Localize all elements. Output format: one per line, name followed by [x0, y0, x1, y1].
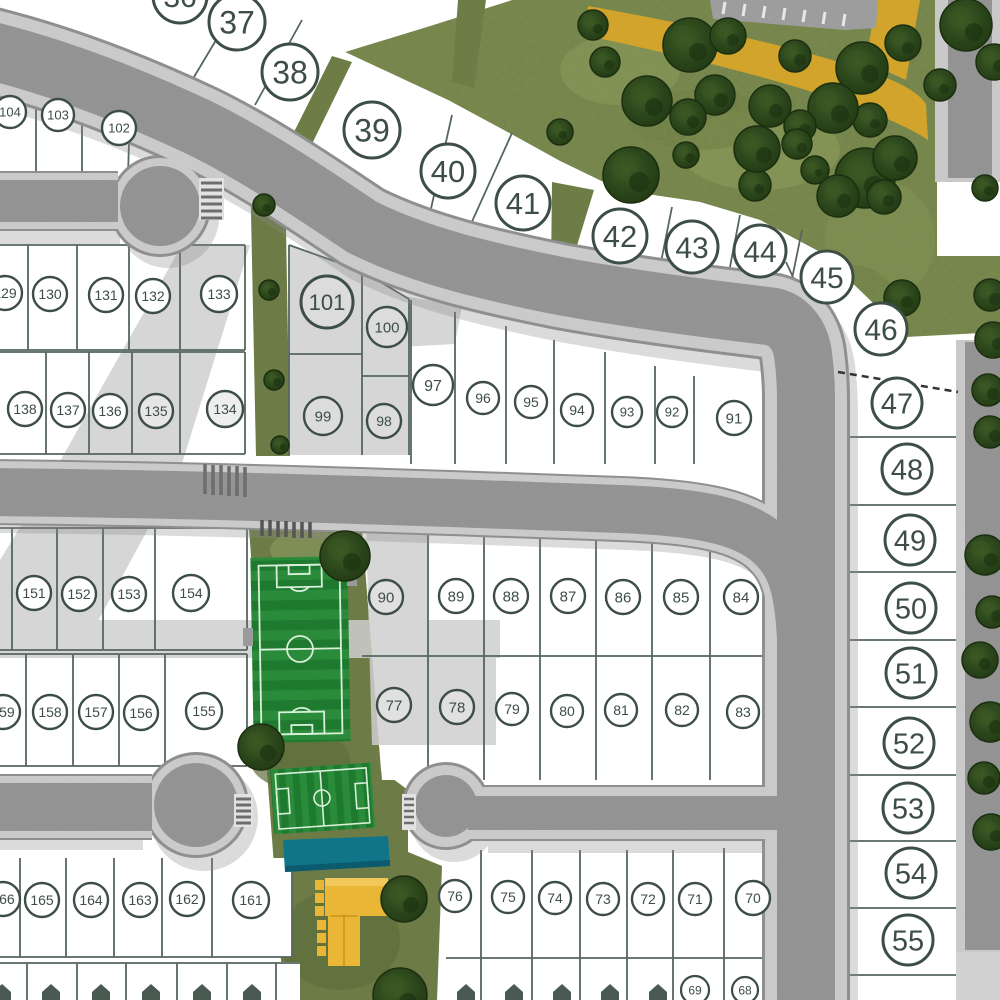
svg-text:137: 137	[56, 402, 80, 418]
svg-text:155: 155	[192, 703, 216, 719]
svg-text:159: 159	[0, 704, 15, 720]
svg-text:104: 104	[0, 105, 21, 120]
svg-text:163: 163	[128, 892, 152, 908]
svg-text:53: 53	[892, 793, 924, 825]
svg-text:41: 41	[506, 186, 540, 221]
svg-text:69: 69	[688, 983, 702, 997]
svg-text:96: 96	[475, 390, 491, 406]
svg-text:103: 103	[47, 108, 69, 123]
svg-text:91: 91	[726, 410, 743, 427]
svg-text:37: 37	[219, 5, 255, 41]
svg-text:54: 54	[895, 858, 927, 890]
svg-text:158: 158	[38, 704, 62, 720]
svg-text:79: 79	[504, 701, 520, 717]
svg-text:55: 55	[892, 925, 924, 957]
svg-text:100: 100	[374, 319, 399, 336]
svg-text:85: 85	[673, 589, 690, 606]
svg-text:133: 133	[207, 286, 231, 302]
svg-text:87: 87	[560, 588, 577, 605]
svg-text:46: 46	[864, 314, 897, 347]
svg-text:89: 89	[448, 588, 465, 605]
svg-text:131: 131	[94, 287, 118, 303]
svg-text:95: 95	[523, 394, 539, 410]
svg-text:74: 74	[547, 890, 563, 906]
svg-text:97: 97	[424, 378, 442, 395]
svg-text:157: 157	[84, 704, 108, 720]
svg-text:39: 39	[354, 113, 390, 149]
svg-text:132: 132	[141, 288, 165, 304]
svg-text:72: 72	[640, 891, 656, 907]
svg-text:80: 80	[559, 703, 575, 719]
svg-text:44: 44	[743, 236, 776, 269]
svg-text:71: 71	[687, 891, 703, 907]
svg-text:40: 40	[431, 154, 465, 189]
svg-text:152: 152	[67, 586, 91, 602]
svg-text:86: 86	[615, 589, 632, 606]
svg-text:81: 81	[613, 702, 629, 718]
svg-text:73: 73	[595, 891, 611, 907]
svg-text:88: 88	[503, 588, 520, 605]
svg-text:162: 162	[175, 891, 199, 907]
svg-text:42: 42	[603, 219, 637, 254]
svg-text:36: 36	[163, 0, 196, 14]
svg-text:52: 52	[893, 728, 925, 760]
svg-text:161: 161	[239, 892, 263, 908]
svg-text:38: 38	[272, 55, 308, 91]
svg-text:50: 50	[895, 593, 927, 625]
svg-text:164: 164	[79, 892, 103, 908]
svg-text:135: 135	[144, 403, 168, 419]
svg-text:101: 101	[309, 290, 346, 315]
svg-text:68: 68	[738, 983, 752, 997]
svg-text:153: 153	[117, 586, 141, 602]
svg-text:70: 70	[745, 890, 761, 906]
svg-text:92: 92	[665, 405, 679, 420]
svg-text:75: 75	[500, 889, 516, 905]
svg-text:130: 130	[38, 286, 62, 302]
svg-text:82: 82	[674, 702, 690, 718]
svg-text:138: 138	[13, 401, 37, 417]
svg-text:134: 134	[213, 401, 237, 417]
svg-text:77: 77	[386, 697, 403, 714]
svg-text:43: 43	[675, 232, 708, 265]
svg-text:94: 94	[569, 402, 585, 418]
svg-text:90: 90	[378, 589, 395, 606]
svg-text:84: 84	[733, 589, 750, 606]
svg-text:151: 151	[22, 585, 46, 601]
svg-text:51: 51	[895, 658, 927, 690]
svg-text:154: 154	[179, 585, 203, 601]
svg-text:136: 136	[98, 403, 122, 419]
svg-text:129: 129	[0, 285, 17, 301]
svg-text:76: 76	[447, 888, 463, 904]
svg-text:102: 102	[108, 121, 130, 136]
svg-text:48: 48	[891, 454, 923, 486]
svg-text:49: 49	[894, 525, 926, 557]
svg-text:99: 99	[315, 408, 332, 425]
svg-text:156: 156	[129, 705, 153, 721]
svg-text:83: 83	[735, 704, 751, 720]
svg-text:93: 93	[620, 405, 634, 420]
svg-text:166: 166	[0, 891, 15, 907]
svg-text:98: 98	[376, 413, 392, 429]
svg-text:47: 47	[881, 388, 913, 420]
svg-text:45: 45	[810, 262, 843, 295]
svg-text:78: 78	[449, 699, 466, 716]
svg-text:165: 165	[30, 892, 54, 908]
